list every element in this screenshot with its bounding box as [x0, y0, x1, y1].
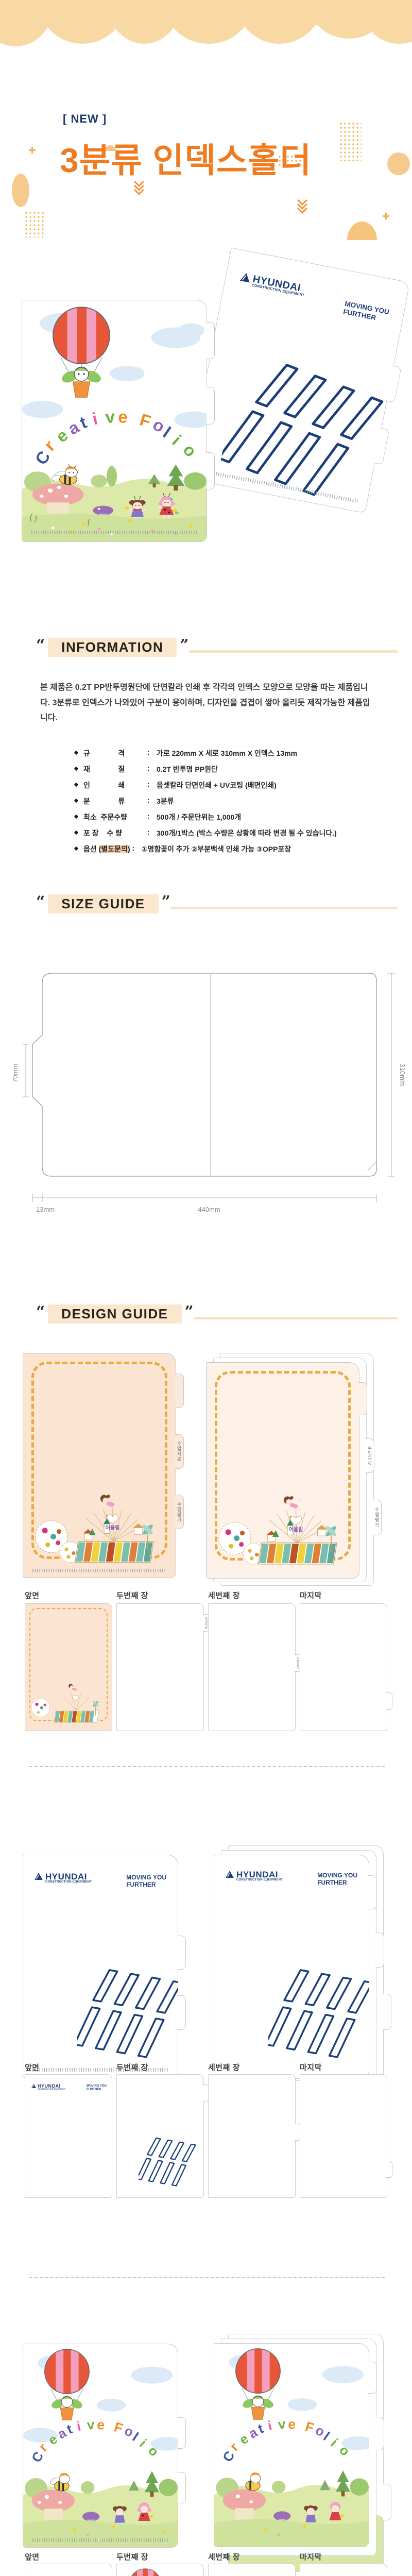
bullet-icon: [74, 799, 78, 803]
folder-tab: 수행평가: [373, 1500, 382, 1536]
spec-label: 최소 주문수량: [83, 813, 127, 821]
arch-letter: i: [75, 2418, 82, 2434]
arch-letter: F: [138, 410, 153, 432]
open-quote-icon: “: [36, 638, 45, 653]
folder-tab: [206, 452, 215, 489]
creative-folio-arch-text: CreativeFolio: [32, 2417, 161, 2468]
folder-tab: [368, 2362, 377, 2393]
example3-thumbnail-second: [116, 2564, 204, 2576]
folder-tab: [206, 387, 215, 424]
spec-value: ①명함꽂이 추가 ②부분백색 인쇄 가능 ③OPP포장: [142, 844, 291, 854]
hce-pattern-illustration: [217, 347, 394, 511]
hyundai-slogan-line2: FURTHER: [126, 1881, 166, 1888]
tab-label: 수업자료: [367, 1446, 373, 1466]
view-label-third: 세번째 장: [208, 2062, 240, 2073]
hyundai-slogan-line2: FURTHER: [317, 1879, 357, 1886]
folder-tab: [177, 1995, 186, 2030]
example2-thumbnail-second: [116, 2074, 204, 2198]
heart-text: 어울림: [106, 1524, 120, 1531]
bullet-icon: [74, 783, 78, 787]
view-label-second: 두번째 장: [116, 2551, 148, 2562]
arch-letter: o: [145, 2443, 162, 2459]
spec-label: 분 류: [83, 797, 125, 805]
arch-letter: i: [266, 2418, 273, 2434]
example1-thumbnail-front: [25, 1603, 112, 1731]
spec-label: 옵션: [83, 845, 99, 853]
section-title: INFORMATION: [48, 638, 177, 657]
arch-letter: i: [91, 409, 99, 429]
hyundai-logo: HYUNDAI CONSTRUCTION EQUIPMENT: [31, 2084, 65, 2090]
spec-row: 재 질:0.2T 반투명 PP원단: [75, 764, 337, 774]
example1-folder-front-preview: 수업자료 수행평가 어울림: [23, 1353, 176, 1578]
spec-value: 300개/1박스 (박스 수량은 상황에 따라 변경 될 수 있습니다.): [157, 828, 337, 838]
example3-folder-front-preview: CreativeFolio: [23, 2344, 178, 2548]
meadow-scene-illustration: [22, 458, 207, 541]
folder-tab: [383, 2484, 391, 2520]
example1-thumbnail-third: 수행평가: [208, 1603, 296, 1731]
dashed-divider: [29, 1766, 385, 1767]
view-label-second: 두번째 장: [116, 1590, 148, 1601]
hyundai-logo: HYUNDAI CONSTRUCTION EQUIPMENT: [239, 272, 306, 297]
folder-tab: 수업자료: [175, 1434, 184, 1469]
view-label-front: 앞면: [25, 2551, 40, 2562]
folder-sheet: CreativeFolio: [214, 2343, 369, 2547]
folder-tab: [177, 2472, 186, 2503]
section-title: DESIGN GUIDE: [48, 1304, 181, 1324]
hyundai-logo: HYUNDAI CONSTRUCTION EQUIPMENT: [35, 1873, 92, 1884]
example3-thumbnail-third: [208, 2564, 296, 2576]
folder-sheet: 어울림: [206, 1362, 359, 1579]
hyundai-slogan: MOVING YOU FURTHER: [126, 1874, 166, 1889]
arch-letter: i: [328, 2436, 340, 2450]
view-label-third: 세번째 장: [208, 2551, 240, 2562]
dim-tab-width-label: 13mm: [36, 1206, 55, 1213]
hyundai-brand-name: HYUNDAI: [45, 1873, 92, 1880]
hyundai-slogan: MOVING YOU FURTHER: [87, 2084, 107, 2092]
folder-tab: [206, 322, 215, 359]
arch-letter: i: [136, 2436, 149, 2450]
bullet-icon: [74, 767, 78, 771]
folder-tab: [386, 2161, 392, 2178]
dome-decoration: [347, 222, 377, 240]
section-design-guide-heading: “ DESIGN GUIDE ”: [36, 1304, 398, 1324]
folder-tab: [368, 1875, 377, 1910]
folder-tab: [375, 1933, 384, 1968]
view-label-second: 두번째 장: [116, 2062, 148, 2073]
spec-highlight: (별도문의): [99, 845, 130, 853]
arch-letter: v: [278, 2416, 286, 2432]
village-illustration: [30, 1682, 106, 1725]
hyundai-triangle-icon: [35, 1873, 43, 1880]
page-title: 3분류 인덱스홀더: [60, 133, 312, 182]
hce-pattern-illustration: [77, 1961, 178, 2064]
hyundai-slogan-line2: FURTHER: [87, 2088, 107, 2092]
dot-grid-decoration: [339, 122, 362, 161]
hyundai-slogan: MOVING YOU FURTHER: [342, 300, 390, 325]
open-quote-icon: “: [36, 894, 45, 910]
hyundai-brand-subtitle: CONSTRUCTION EQUIPMENT: [45, 1880, 92, 1884]
spec-label: 규 격: [83, 749, 125, 757]
example3-thumbnail-last: [300, 2564, 387, 2576]
spec-row: 옵션 (별도문의):①명함꽂이 추가 ②부분백색 인쇄 가능 ③OPP포장: [75, 844, 337, 854]
hero-folder-hyundai: HYUNDAI CONSTRUCTION EQUIPMENT MOVING YO…: [186, 247, 410, 513]
hyundai-triangle-icon: [240, 272, 251, 282]
circle-decoration: [387, 152, 410, 175]
dim-width-label: 440mm: [198, 1206, 220, 1213]
folder-tab: 수행평가: [175, 1495, 184, 1529]
tab-label: 수행평가: [295, 1657, 300, 1669]
spec-row: 인 쇄:옵셋칼라 단면인쇄 + UV코팅 (배면인쇄): [75, 780, 337, 790]
tab-label: 수업자료: [203, 1617, 208, 1629]
meadow-scene-illustration: [214, 2464, 369, 2547]
dot-grid-decoration: [24, 211, 45, 238]
hyundai-brand-name: HYUNDAI: [236, 1871, 283, 1878]
hyundai-slogan-line1: MOVING YOU: [317, 1872, 357, 1879]
spec-value: 3분류: [157, 796, 174, 806]
example2-thumbnail-third: [208, 2074, 296, 2198]
bullet-icon: [74, 751, 78, 755]
hce-pattern-illustration: [139, 2132, 198, 2190]
folder-tab: [358, 1382, 367, 1416]
example2-thumbnail-front: HYUNDAI CONSTRUCTION EQUIPMENT MOVING YO…: [25, 2074, 112, 2198]
example1-folder-stack-preview: 수행평가 수업자료: [206, 1353, 384, 1587]
view-label-last: 마지막: [300, 1590, 322, 1601]
chevron-down-icon: [299, 200, 306, 212]
example1-thumbnail-last: [300, 1603, 387, 1731]
balloon-illustration: [123, 2567, 167, 2576]
example1-thumbnail-second: 수업자료: [116, 1603, 204, 1731]
size-diagram: 70mm 310mm 13mm 440mm: [10, 956, 407, 1224]
bullet-icon: [74, 815, 78, 819]
close-quote-icon: ”: [162, 894, 170, 910]
view-label-last: 마지막: [300, 2551, 322, 2562]
view-label-last: 마지막: [300, 2062, 322, 2073]
bullet-icon: [74, 831, 78, 835]
spec-row: 포 장 수 량:300개/1박스 (박스 수량은 상황에 따라 변경 될 수 있…: [75, 828, 337, 838]
folder-tab: [175, 1374, 184, 1408]
product-detail-page: [ NEW ] 3분류 인덱스홀더 HYUNDAI CONSTRUCTION E…: [0, 0, 412, 2576]
hyundai-triangle-icon: [31, 2084, 36, 2088]
example2-folder-front-preview: HYUNDAI CONSTRUCTION EQUIPMENT MOVING YO…: [23, 1855, 178, 2078]
dim-tab-height-label: 70mm: [11, 1064, 19, 1082]
hyundai-triangle-icon: [226, 1871, 234, 1878]
creative-folio-arch-text: CreativeFolio: [223, 2417, 352, 2467]
spec-row: 규 격:가로 220mm X 세로 310mm X 인덱스 13mm: [75, 748, 337, 758]
spec-row: 최소 주문수량:500개 / 주문단위는 1,000개: [75, 812, 337, 822]
spec-value: 가로 220mm X 세로 310mm X 인덱스 13mm: [157, 748, 297, 758]
village-illustration: 어울림: [33, 1492, 165, 1567]
hyundai-brand-subtitle: CONSTRUCTION EQUIPMENT: [38, 2088, 65, 2090]
balloon-illustration: [228, 2347, 288, 2425]
hero-folder-folio: CreativeFolio: [22, 300, 207, 542]
folder-sheet: HYUNDAI CONSTRUCTION EQUIPMENT MOVING YO…: [214, 1855, 369, 2077]
arch-letter: o: [336, 2443, 353, 2459]
arch-letter: e: [118, 408, 128, 428]
spec-value: 500개 / 주문단위는 1,000개: [157, 812, 241, 822]
heading-underline: [170, 907, 398, 909]
spec-label: 포 장 수 량: [83, 829, 122, 837]
example3-thumbnail-front: CreativeFolio: [25, 2564, 112, 2576]
new-badge: [ NEW ]: [63, 112, 107, 126]
hyundai-brand-name: HYUNDAI: [38, 2084, 65, 2088]
folder-tab: [375, 2417, 384, 2450]
balloon-illustration: [43, 304, 120, 404]
spec-row: 분 류:3분류: [75, 796, 337, 806]
dim-height-label: 310mm: [399, 1063, 406, 1086]
spec-label: 재 질: [83, 765, 125, 773]
village-illustration: 어울림: [217, 1494, 349, 1569]
folder-tab: [177, 1936, 186, 1970]
example3-folder-stack-preview: CreativeFolio: [214, 2334, 389, 2576]
arch-letter: v: [87, 2417, 95, 2433]
hyundai-slogan-line1: MOVING YOU: [87, 2084, 107, 2088]
spec-value: 옵셋칼라 단면인쇄 + UV코팅 (배면인쇄): [157, 780, 277, 790]
view-label-front: 앞면: [25, 1590, 40, 1601]
folder-tab: 수업자료: [366, 1438, 374, 1473]
heart-text: 어울림: [289, 1526, 303, 1533]
plus-icon: [29, 147, 36, 154]
balloon-illustration: [37, 2347, 97, 2426]
heading-underline: [194, 1317, 398, 1319]
hyundai-brand-subtitle: CONSTRUCTION EQUIPMENT: [236, 1878, 283, 1882]
chevron-down-icon: [135, 181, 143, 194]
close-quote-icon: ”: [185, 1304, 194, 1320]
dashed-divider: [29, 2277, 385, 2278]
bullet-icon: [74, 846, 78, 851]
spec-value: 0.2T 반투명 PP원단: [157, 764, 218, 774]
meadow-scene-illustration: [23, 2465, 178, 2547]
spec-label: 인 쇄: [83, 781, 125, 789]
folder-tab: [383, 1994, 391, 2030]
example2-folder-stack-preview: HYUNDAI CONSTRUCTION EQUIPMENT MOVING YO…: [214, 1845, 389, 2082]
arch-letter: i: [168, 432, 185, 449]
close-quote-icon: ”: [180, 638, 188, 653]
tab-label: 수행평가: [176, 1502, 183, 1522]
view-label-front: 앞면: [25, 2062, 40, 2073]
folder-tab: [177, 2417, 186, 2449]
tab-label: 수행평가: [374, 1507, 381, 1528]
product-description: 본 제품은 0.2T PP반투명원단에 단면칼라 인쇄 후 각각의 인덱스 모양…: [40, 680, 374, 726]
plus-icon: [383, 213, 389, 219]
ellipse-decoration: [12, 174, 29, 207]
hyundai-slogan-line1: MOVING YOU: [126, 1874, 166, 1881]
example2-thumbnail-last: [300, 2074, 387, 2198]
folder-tab: [386, 1692, 392, 1710]
arch-letter: e: [288, 2417, 296, 2432]
section-size-guide-heading: “ SIZE GUIDE ”: [36, 894, 398, 913]
section-information-heading: “ INFORMATION ”: [36, 638, 398, 657]
tab-label: 수업자료: [176, 1441, 183, 1462]
hyundai-slogan: MOVING YOU FURTHER: [317, 1872, 357, 1887]
arch-letter: e: [97, 2417, 105, 2433]
view-label-third: 세번째 장: [208, 1590, 240, 1601]
open-quote-icon: “: [36, 1304, 45, 1320]
hce-pattern-illustration: [268, 1961, 369, 2064]
heading-underline: [189, 650, 398, 653]
arch-letter: v: [105, 407, 116, 427]
scallop-border-decoration: [0, 0, 412, 61]
section-title: SIZE GUIDE: [48, 894, 158, 913]
spec-list: 규 격:가로 220mm X 세로 310mm X 인덱스 13mm 재 질:0…: [75, 748, 337, 860]
hyundai-logo: HYUNDAI CONSTRUCTION EQUIPMENT: [226, 1871, 283, 1882]
